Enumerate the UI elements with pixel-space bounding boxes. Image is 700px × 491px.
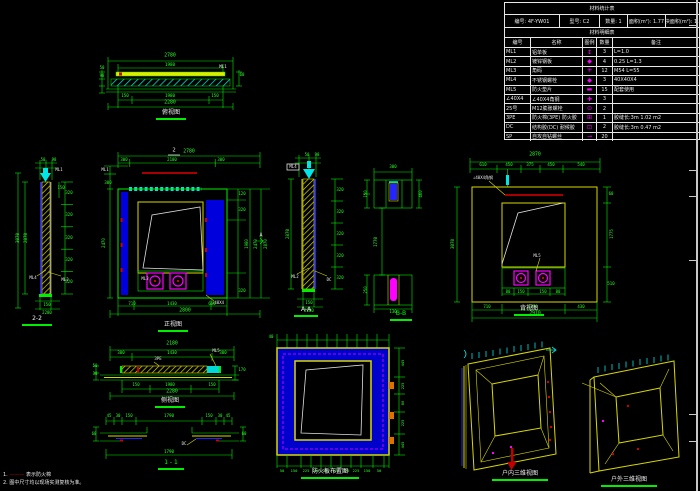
view-small-details: 3001504601770250130 xyxy=(362,160,427,320)
caption-panel-text: 防火板布置图 xyxy=(312,468,348,475)
cell-remark xyxy=(612,104,699,112)
cell-remark xyxy=(612,95,699,103)
axon-outdoor-drawing xyxy=(582,345,697,485)
sheet-border-right xyxy=(696,0,698,491)
caption-detail-b-text: B-B xyxy=(396,310,406,317)
cell-remark: 胶缝长:3m 0.47 m2 xyxy=(612,123,699,131)
table-row: ML1铝单板↕3L=1.0 xyxy=(505,47,699,56)
cell-code: 25号 xyxy=(505,104,530,112)
caption-panel-layout: 防火板布置图 xyxy=(301,469,359,479)
cell-name: 结构胶(DC) 耐候胶 xyxy=(530,123,582,131)
legend-symbol: ✳ xyxy=(582,67,596,75)
caption-rear-text: 背视图 xyxy=(520,305,538,312)
cell-name: 防火棉(3PE) 防火胶 xyxy=(530,114,582,122)
cell-qty: 20 xyxy=(596,133,612,141)
table-row: 25号M12膨胀螺栓⊙2 xyxy=(505,103,699,112)
glass-opening-mark xyxy=(143,207,203,270)
col-header: 数量 xyxy=(596,38,612,47)
table-header-row: 编号名称图例数量备注 xyxy=(505,37,699,47)
note-1-number: 1. xyxy=(3,472,8,478)
cell-code: ML2 xyxy=(505,57,530,65)
cell-name: ∠40X4角钢 xyxy=(530,95,582,103)
view-panel-layout: 4050150225225225225225225150504452258022… xyxy=(263,330,411,480)
cell-name: 铝单板 xyxy=(530,48,582,56)
caption-axon-outdoor: 户外三维视图 xyxy=(601,477,657,487)
frame-tick xyxy=(689,196,697,197)
blue-insert xyxy=(390,184,397,200)
legend-symbol: ⊙ xyxy=(582,104,596,112)
cell-code: ML5 xyxy=(505,86,530,94)
pattern-defs xyxy=(0,0,1,1)
panel-layout-drawing xyxy=(263,330,411,480)
cell-name: 防火垫片 xyxy=(530,86,582,94)
outer-yellow-frame xyxy=(472,187,597,302)
cell-qty: 3 xyxy=(596,95,612,103)
cell-name: 不锈钢螺栓 xyxy=(530,76,582,84)
legend-symbol: ◆ xyxy=(582,57,596,65)
cell-remark xyxy=(612,133,699,141)
hatch-bar xyxy=(122,366,207,373)
cell-qty: 3 xyxy=(596,48,612,56)
table-row: DC结构胶(DC) 耐候胶⊡2胶缝长:3m 0.47 m2 xyxy=(505,122,699,131)
frame-tick xyxy=(689,441,697,442)
caption-side-text: 侧视图 xyxy=(161,397,179,404)
view-left-section: 509830702870320320320320320150ML1ML4ML21… xyxy=(15,158,100,330)
frame-tick xyxy=(689,260,697,261)
note-1-text: 表示防火棉 xyxy=(26,472,51,478)
cell-name: 自攻自钻螺丝 xyxy=(530,133,582,141)
cell-name: 角码 xyxy=(530,67,582,75)
blue-sheet-line xyxy=(40,182,42,294)
cell-qty: 2 xyxy=(596,123,612,131)
top-plan-drawing xyxy=(98,55,246,113)
legend-symbol: ✚ xyxy=(582,95,596,103)
cell-code: ML3 xyxy=(505,67,530,75)
cad-sheet: 27801980ML150986015019801502280 俯视图 xyxy=(0,0,700,491)
cell-remark: 0.25 L=1.3 xyxy=(612,57,699,65)
opening xyxy=(295,361,371,440)
note-line-2: 2. 图中尺寸均以现场实测复核为准。 xyxy=(3,479,84,487)
info-cell: 面积(m²): 1.77 xyxy=(627,15,665,27)
col-header: 编号 xyxy=(505,38,530,47)
cell-remark: 胶缝长:3m 1.02 m2 xyxy=(612,114,699,122)
cell-code: ∠40X4 xyxy=(505,95,530,103)
table-row: ML5防火垫片▬15配套使用 xyxy=(505,85,699,94)
opening-outline xyxy=(492,375,541,436)
table-title: 材料统计表 xyxy=(505,3,699,14)
drawing-notes: 1. ——— 表示防火棉 2. 图中尺寸均以现场实测复核为准。 xyxy=(3,471,84,487)
cell-code: 3PE xyxy=(505,114,530,122)
legend-symbol: → xyxy=(582,133,596,141)
table-row: 3PE防火棉(3PE) 防火胶⊞1胶缝长:3m 1.02 m2 xyxy=(505,113,699,122)
left-section-drawing xyxy=(15,158,100,330)
inner-yellow-frame xyxy=(138,202,203,273)
note-1-symbol: ——— xyxy=(9,472,24,478)
view-top-plan: 27801980ML150986015019801502280 xyxy=(98,55,246,113)
axon-indoor-drawing xyxy=(450,336,578,478)
caption-top-plan-text: 俯视图 xyxy=(162,109,180,116)
cell-name: M12膨胀螺栓 xyxy=(530,104,582,112)
blue-panel-right xyxy=(206,200,224,295)
cell-qty: 3 xyxy=(596,76,612,84)
section-hatch-bar xyxy=(303,179,314,289)
table-row: SP自攻自钻螺丝→20 xyxy=(505,132,699,141)
caption-left-section-text: 2-2 xyxy=(32,315,42,322)
table-info-row: 编号: 4F-YW01型号: C2数量: 1面积(m²): 1.77单块面积(m… xyxy=(505,14,699,27)
material-table: 材料统计表编号: 4F-YW01型号: C2数量: 1面积(m²): 1.77单… xyxy=(504,2,700,140)
table-subtitle-row: 材料明细表 xyxy=(505,27,699,37)
cell-code: ML1 xyxy=(505,48,530,56)
legend-symbol: ▬ xyxy=(582,86,596,94)
cyan-arrow xyxy=(546,347,556,353)
caption-front-text: 正视图 xyxy=(164,321,182,328)
cell-name: 镀锌钢板 xyxy=(530,57,582,65)
opening-outline xyxy=(616,388,663,443)
caption-section-1-1-text: 1 - 1 xyxy=(164,459,178,466)
cell-qty: 15 xyxy=(596,86,612,94)
caption-axon-outdoor-text: 户外三维视图 xyxy=(611,476,647,483)
cell-code: DC xyxy=(505,123,530,131)
magenta-gasket xyxy=(390,278,397,301)
info-cell: 数量: 1 xyxy=(599,15,627,27)
caption-rear-elevation: 背视图 xyxy=(514,306,544,316)
col-header: 名称 xyxy=(530,38,582,47)
caption-left-section: 2-2 xyxy=(22,316,52,326)
caption-top-plan: 俯视图 xyxy=(156,110,186,120)
frame-tick xyxy=(689,170,697,171)
col-header: 图例 xyxy=(582,38,596,47)
cell-qty: 2 xyxy=(596,104,612,112)
frame-tick xyxy=(689,414,697,415)
caption-side-section: 侧视图 xyxy=(155,398,185,408)
caption-mid-section: A-A xyxy=(294,307,318,317)
cell-remark: 配套使用 xyxy=(612,86,699,94)
caption-front-elevation: 正视图 xyxy=(158,322,188,332)
cyan-anchor xyxy=(303,169,315,179)
red-arrow xyxy=(507,462,517,470)
cell-qty: 12 xyxy=(596,67,612,75)
frame-tick xyxy=(689,25,697,26)
cell-code: ML4 xyxy=(505,76,530,84)
caption-mid-section-text: A-A xyxy=(301,306,311,313)
small-details-drawing xyxy=(362,160,427,320)
cell-remark: M54 L=55 xyxy=(612,67,699,75)
caption-detail-b: B-B xyxy=(390,311,412,321)
cell-qty: 1 xyxy=(596,114,612,122)
glass-opening-mark xyxy=(502,203,563,264)
view-axon-indoor xyxy=(450,336,578,478)
front-elevation-drawing xyxy=(98,148,285,338)
info-cell: 型号: C2 xyxy=(559,15,599,27)
caption-axon-indoor: 户内三维视图 xyxy=(492,471,548,481)
cell-remark: L=1.0 xyxy=(612,48,699,56)
caption-axon-indoor-text: 户内三维视图 xyxy=(502,470,538,477)
info-cell: 编号: 4F-YW01 xyxy=(505,15,559,27)
view-axon-outdoor xyxy=(582,345,697,485)
cell-code: SP xyxy=(505,133,530,141)
table-row: ML3角码✳12M54 L=55 xyxy=(505,66,699,75)
mid-section-drawing xyxy=(283,153,353,321)
top-panel-bar xyxy=(116,72,225,76)
panel-outline xyxy=(594,361,679,471)
col-header: 备注 xyxy=(612,38,699,47)
cell-remark: 40X40X4 xyxy=(612,76,699,84)
cell-qty: 4 xyxy=(596,57,612,65)
note-line-1: 1. ——— 表示防火棉 xyxy=(3,471,84,479)
legend-symbol: ⊞ xyxy=(582,114,596,122)
legend-symbol: ⊡ xyxy=(582,123,596,131)
view-mid-section: 5098ML42870320320320320320ML2DC1502280 xyxy=(283,153,353,321)
legend-symbol: ↕ xyxy=(582,48,596,56)
table-row: ML2镀锌钢板◆40.25 L=1.3 xyxy=(505,56,699,65)
caption-section-1-1: 1 - 1 xyxy=(158,460,184,470)
cyan-anchor xyxy=(40,173,51,182)
cyan-end-block xyxy=(207,366,219,373)
table-row: ∠40X4∠40X4角钢✚3 xyxy=(505,94,699,103)
legend-symbol: ◆ xyxy=(582,76,596,84)
table-row: ML4不锈钢螺栓◆340X40X4 xyxy=(505,75,699,84)
view-front-elevation: 227803002180300ML13002470120320198032024… xyxy=(98,148,285,338)
table-subtitle: 材料明细表 xyxy=(505,28,699,37)
section-hatch-bar xyxy=(42,182,50,294)
cyan-anchor xyxy=(506,175,509,185)
table-title-row: 材料统计表 xyxy=(505,3,699,14)
insulation-hatch xyxy=(111,79,230,86)
